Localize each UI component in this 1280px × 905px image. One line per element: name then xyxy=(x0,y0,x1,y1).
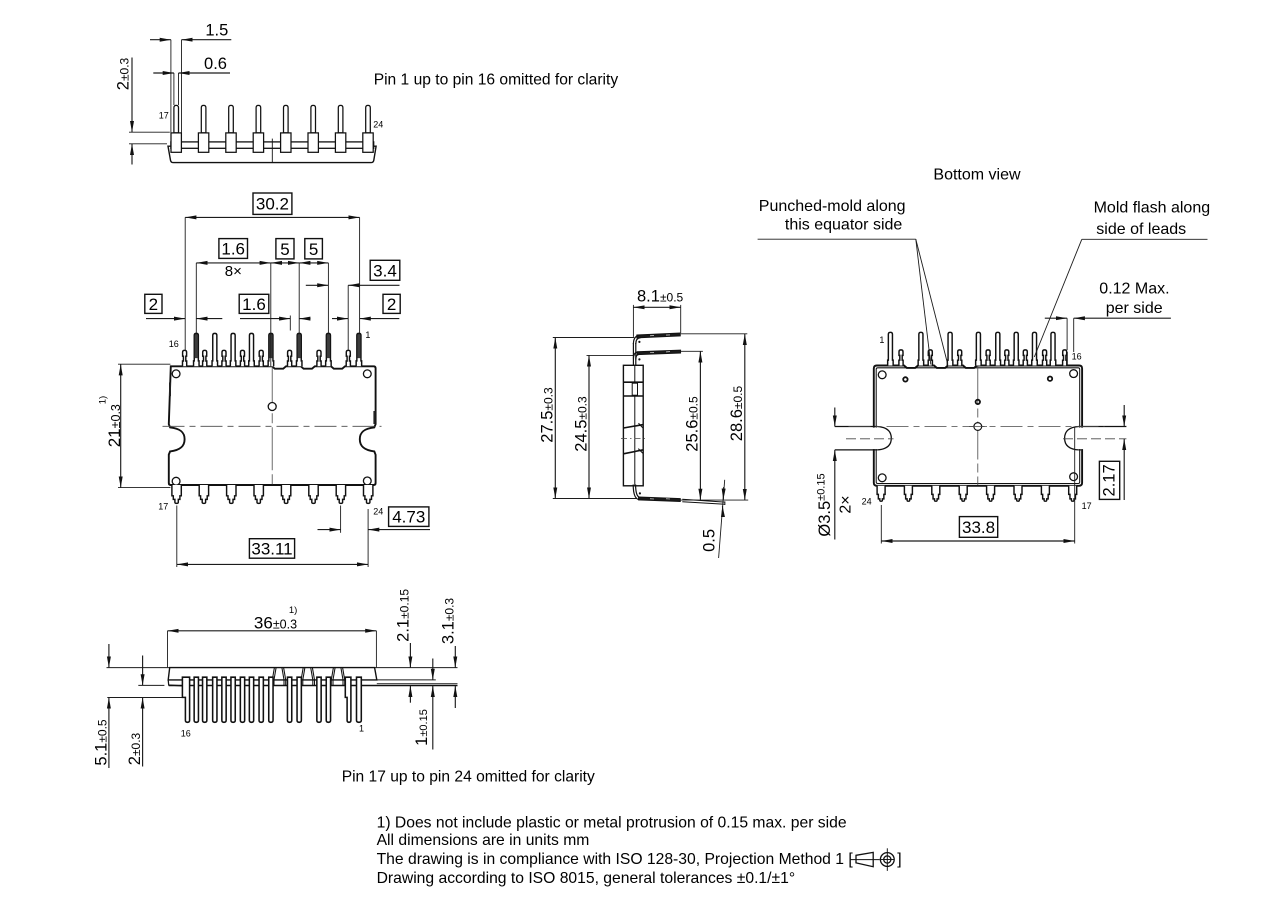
svg-text:Mold flash along: Mold flash along xyxy=(1094,200,1211,217)
svg-text:8.1±0.5: 8.1±0.5 xyxy=(637,288,684,306)
svg-text:16: 16 xyxy=(1072,352,1082,362)
svg-text:1: 1 xyxy=(365,330,370,340)
svg-text:17: 17 xyxy=(159,111,169,121)
svg-text:4.73: 4.73 xyxy=(392,508,425,527)
svg-text:0.12 Max.: 0.12 Max. xyxy=(1099,281,1169,298)
svg-text:1) Does not include plastic or: 1) Does not include plastic or metal pro… xyxy=(377,815,847,832)
svg-text:16: 16 xyxy=(169,339,179,349)
svg-text:33.11: 33.11 xyxy=(251,539,292,558)
svg-text:Pin 17 up to pin 24 omitted fo: Pin 17 up to pin 24 omitted for clarity xyxy=(342,769,595,786)
svg-text:17: 17 xyxy=(158,502,168,512)
svg-text:3.1±0.3: 3.1±0.3 xyxy=(440,598,458,645)
svg-text:27.5±0.3: 27.5±0.3 xyxy=(539,387,557,443)
svg-text:2±0.3: 2±0.3 xyxy=(115,57,133,90)
svg-text:1: 1 xyxy=(879,335,884,345)
svg-text:8×: 8× xyxy=(225,263,242,280)
svg-text:0.6: 0.6 xyxy=(204,55,227,73)
svg-text:2: 2 xyxy=(387,295,396,314)
svg-text:30.2: 30.2 xyxy=(256,195,289,214)
svg-text:28.6±0.5: 28.6±0.5 xyxy=(728,385,746,441)
svg-text:16: 16 xyxy=(181,729,191,739)
svg-text:24.5±0.3: 24.5±0.3 xyxy=(572,396,590,452)
svg-text:]: ] xyxy=(897,851,901,868)
svg-text:2±0.3: 2±0.3 xyxy=(126,732,144,765)
svg-text:2: 2 xyxy=(149,295,158,314)
svg-text:this equator side: this equator side xyxy=(785,217,903,234)
svg-text:1): 1) xyxy=(98,396,109,404)
svg-text:1.6: 1.6 xyxy=(242,295,266,314)
svg-text:1): 1) xyxy=(289,605,297,616)
svg-text:Drawing according to ISO 8015,: Drawing according to ISO 8015, general t… xyxy=(377,870,796,887)
svg-text:24: 24 xyxy=(373,119,383,129)
svg-text:3.4: 3.4 xyxy=(373,261,397,280)
svg-text:1.6: 1.6 xyxy=(221,240,245,259)
svg-text:All dimensions are in units mm: All dimensions are in units mm xyxy=(377,832,590,849)
svg-text:per side: per side xyxy=(1106,300,1163,317)
svg-text:2×: 2× xyxy=(838,495,855,513)
svg-text:2.1±0.15: 2.1±0.15 xyxy=(395,589,413,642)
svg-text:5.1±0.5: 5.1±0.5 xyxy=(93,719,111,766)
svg-text:1: 1 xyxy=(359,723,364,733)
svg-text:17: 17 xyxy=(1082,501,1092,511)
svg-text:24: 24 xyxy=(373,507,383,517)
svg-text:2.17: 2.17 xyxy=(1101,464,1119,496)
svg-text:Punched-mold along: Punched-mold along xyxy=(759,198,906,215)
svg-text:33.8: 33.8 xyxy=(962,518,995,537)
svg-text:Pin 1 up to pin 16 omitted for: Pin 1 up to pin 16 omitted for clarity xyxy=(374,72,619,89)
svg-text:1.5: 1.5 xyxy=(205,22,228,40)
svg-text:0.5: 0.5 xyxy=(701,529,719,552)
svg-text:5: 5 xyxy=(309,240,318,259)
svg-text:side of leads: side of leads xyxy=(1096,221,1186,238)
svg-text:25.6±0.5: 25.6±0.5 xyxy=(684,396,702,452)
svg-text:The drawing is in compliance w: The drawing is in compliance with ISO 12… xyxy=(377,851,854,868)
svg-text:24: 24 xyxy=(862,496,872,506)
svg-text:Bottom view: Bottom view xyxy=(933,167,1021,184)
svg-text:5: 5 xyxy=(280,240,289,259)
